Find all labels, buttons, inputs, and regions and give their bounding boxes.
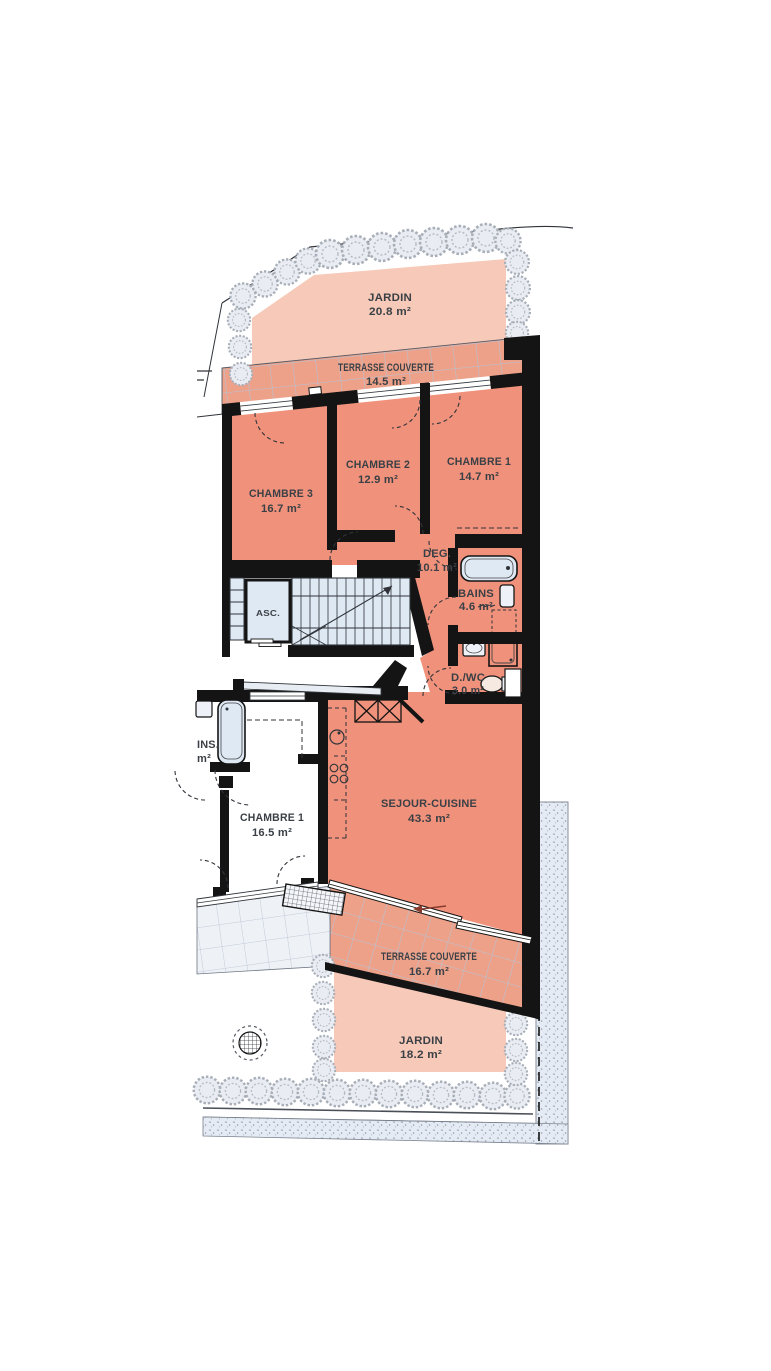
label-elevator: ASC. [256, 608, 280, 618]
label-bains-area: 4.6 m² [459, 601, 493, 613]
label-bains-name: BAINS [458, 588, 494, 600]
label-terrasse-top-name: TERRASSE COUVERTE [338, 362, 434, 374]
label-neighbor-bains-area: m² [197, 753, 211, 765]
label-sejour-name: SEJOUR-CUISINE [381, 798, 477, 810]
label-jardin-top-name: JARDIN [368, 292, 412, 304]
label-terrasse-bottom-name: TERRASSE COUVERTE [381, 951, 477, 963]
label-terrasse-bottom-area: 16.7 m² [409, 966, 449, 978]
label-dwc-name: D./WC [451, 672, 485, 684]
label-chambre2-name: CHAMBRE 2 [346, 459, 410, 471]
elevator: ASC. [246, 580, 290, 647]
label-chambre2-area: 12.9 m² [358, 474, 398, 486]
label-jardin-bottom-area: 18.2 m² [400, 1049, 442, 1061]
label-chambre3-name: CHAMBRE 3 [249, 488, 313, 500]
label-deg-name: DEG. [423, 548, 451, 560]
label-sejour-area: 43.3 m² [408, 813, 450, 825]
tree [233, 1026, 267, 1060]
floor-plan: ASC. [0, 0, 771, 1371]
stairs [292, 578, 410, 645]
label-dwc-area: 3.0 m² [452, 685, 484, 697]
label-chambre1-name: CHAMBRE 1 [447, 456, 511, 468]
stairwell: ASC. [230, 578, 410, 647]
label-neighbor-chambre1-area: 16.5 m² [252, 827, 292, 839]
label-jardin-bottom-name: JARDIN [399, 1035, 443, 1047]
label-deg-area: 10.1 m² [417, 562, 457, 574]
floor-plan-page: ASC. [0, 0, 771, 1371]
label-neighbor-bains-name: INS. [197, 739, 219, 751]
label-jardin-top-area: 20.8 m² [369, 306, 411, 318]
label-neighbor-chambre1-name: CHAMBRE 1 [240, 812, 304, 824]
label-chambre1-area: 14.7 m² [459, 471, 499, 483]
label-terrasse-top-area: 14.5 m² [366, 376, 406, 388]
label-chambre3-area: 16.7 m² [261, 503, 301, 515]
